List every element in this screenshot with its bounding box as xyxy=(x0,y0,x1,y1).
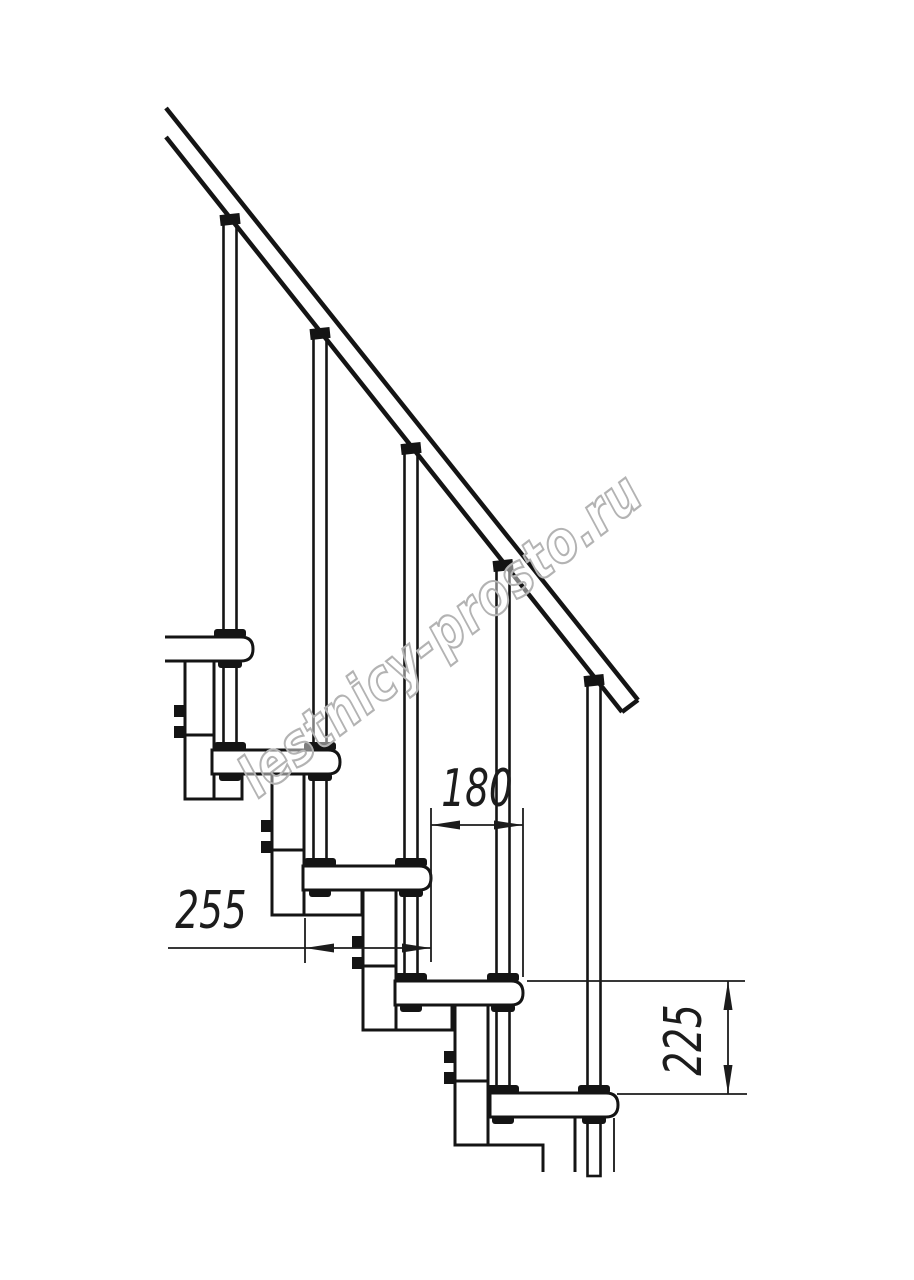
under-nut xyxy=(582,1116,606,1124)
support-module-5 xyxy=(543,1118,614,1172)
tread-5 xyxy=(490,1093,618,1117)
bolt-tab xyxy=(261,841,271,853)
staircase-drawing: 180 255 225 lestnicy-prosto.ru xyxy=(0,0,914,1280)
bolt-tab xyxy=(352,936,362,948)
bolt-tab xyxy=(444,1072,454,1084)
bolt-tab xyxy=(174,705,184,717)
foot-flange xyxy=(395,858,427,867)
under-nut xyxy=(218,660,242,668)
arrowhead-left xyxy=(305,944,334,953)
tread-4 xyxy=(395,981,523,1005)
bolt-tab xyxy=(174,726,184,738)
arrowhead-left xyxy=(431,821,460,830)
tread-3 xyxy=(303,866,431,890)
baluster-2 xyxy=(314,334,327,864)
under-nut xyxy=(400,1004,422,1012)
dimension-value-180: 180 xyxy=(441,758,512,819)
arrowhead-up xyxy=(724,981,733,1010)
under-nut xyxy=(399,889,423,897)
under-nut xyxy=(492,1116,514,1124)
baluster-1 xyxy=(224,220,237,748)
foot-flange xyxy=(214,629,246,638)
tread-1 xyxy=(165,637,253,661)
foot-flange xyxy=(487,973,519,982)
bolt-tab xyxy=(261,820,271,832)
arrowhead-down xyxy=(724,1065,733,1094)
under-nut xyxy=(309,889,331,897)
dimension-depth-255: 255 xyxy=(168,880,431,963)
bolt-tab xyxy=(444,1051,454,1063)
dimension-rise-225: 225 xyxy=(527,981,747,1094)
foot-flange xyxy=(395,973,427,982)
handrail-end-cap xyxy=(622,700,638,712)
foot-flange xyxy=(578,1085,610,1094)
dimension-value-255: 255 xyxy=(175,880,246,941)
dimension-value-225: 225 xyxy=(653,1004,714,1075)
foot-flange xyxy=(487,1085,519,1094)
under-nut xyxy=(491,1004,515,1012)
bolt-tab xyxy=(352,957,362,969)
foot-flange xyxy=(304,858,336,867)
baluster-3 xyxy=(405,449,418,979)
